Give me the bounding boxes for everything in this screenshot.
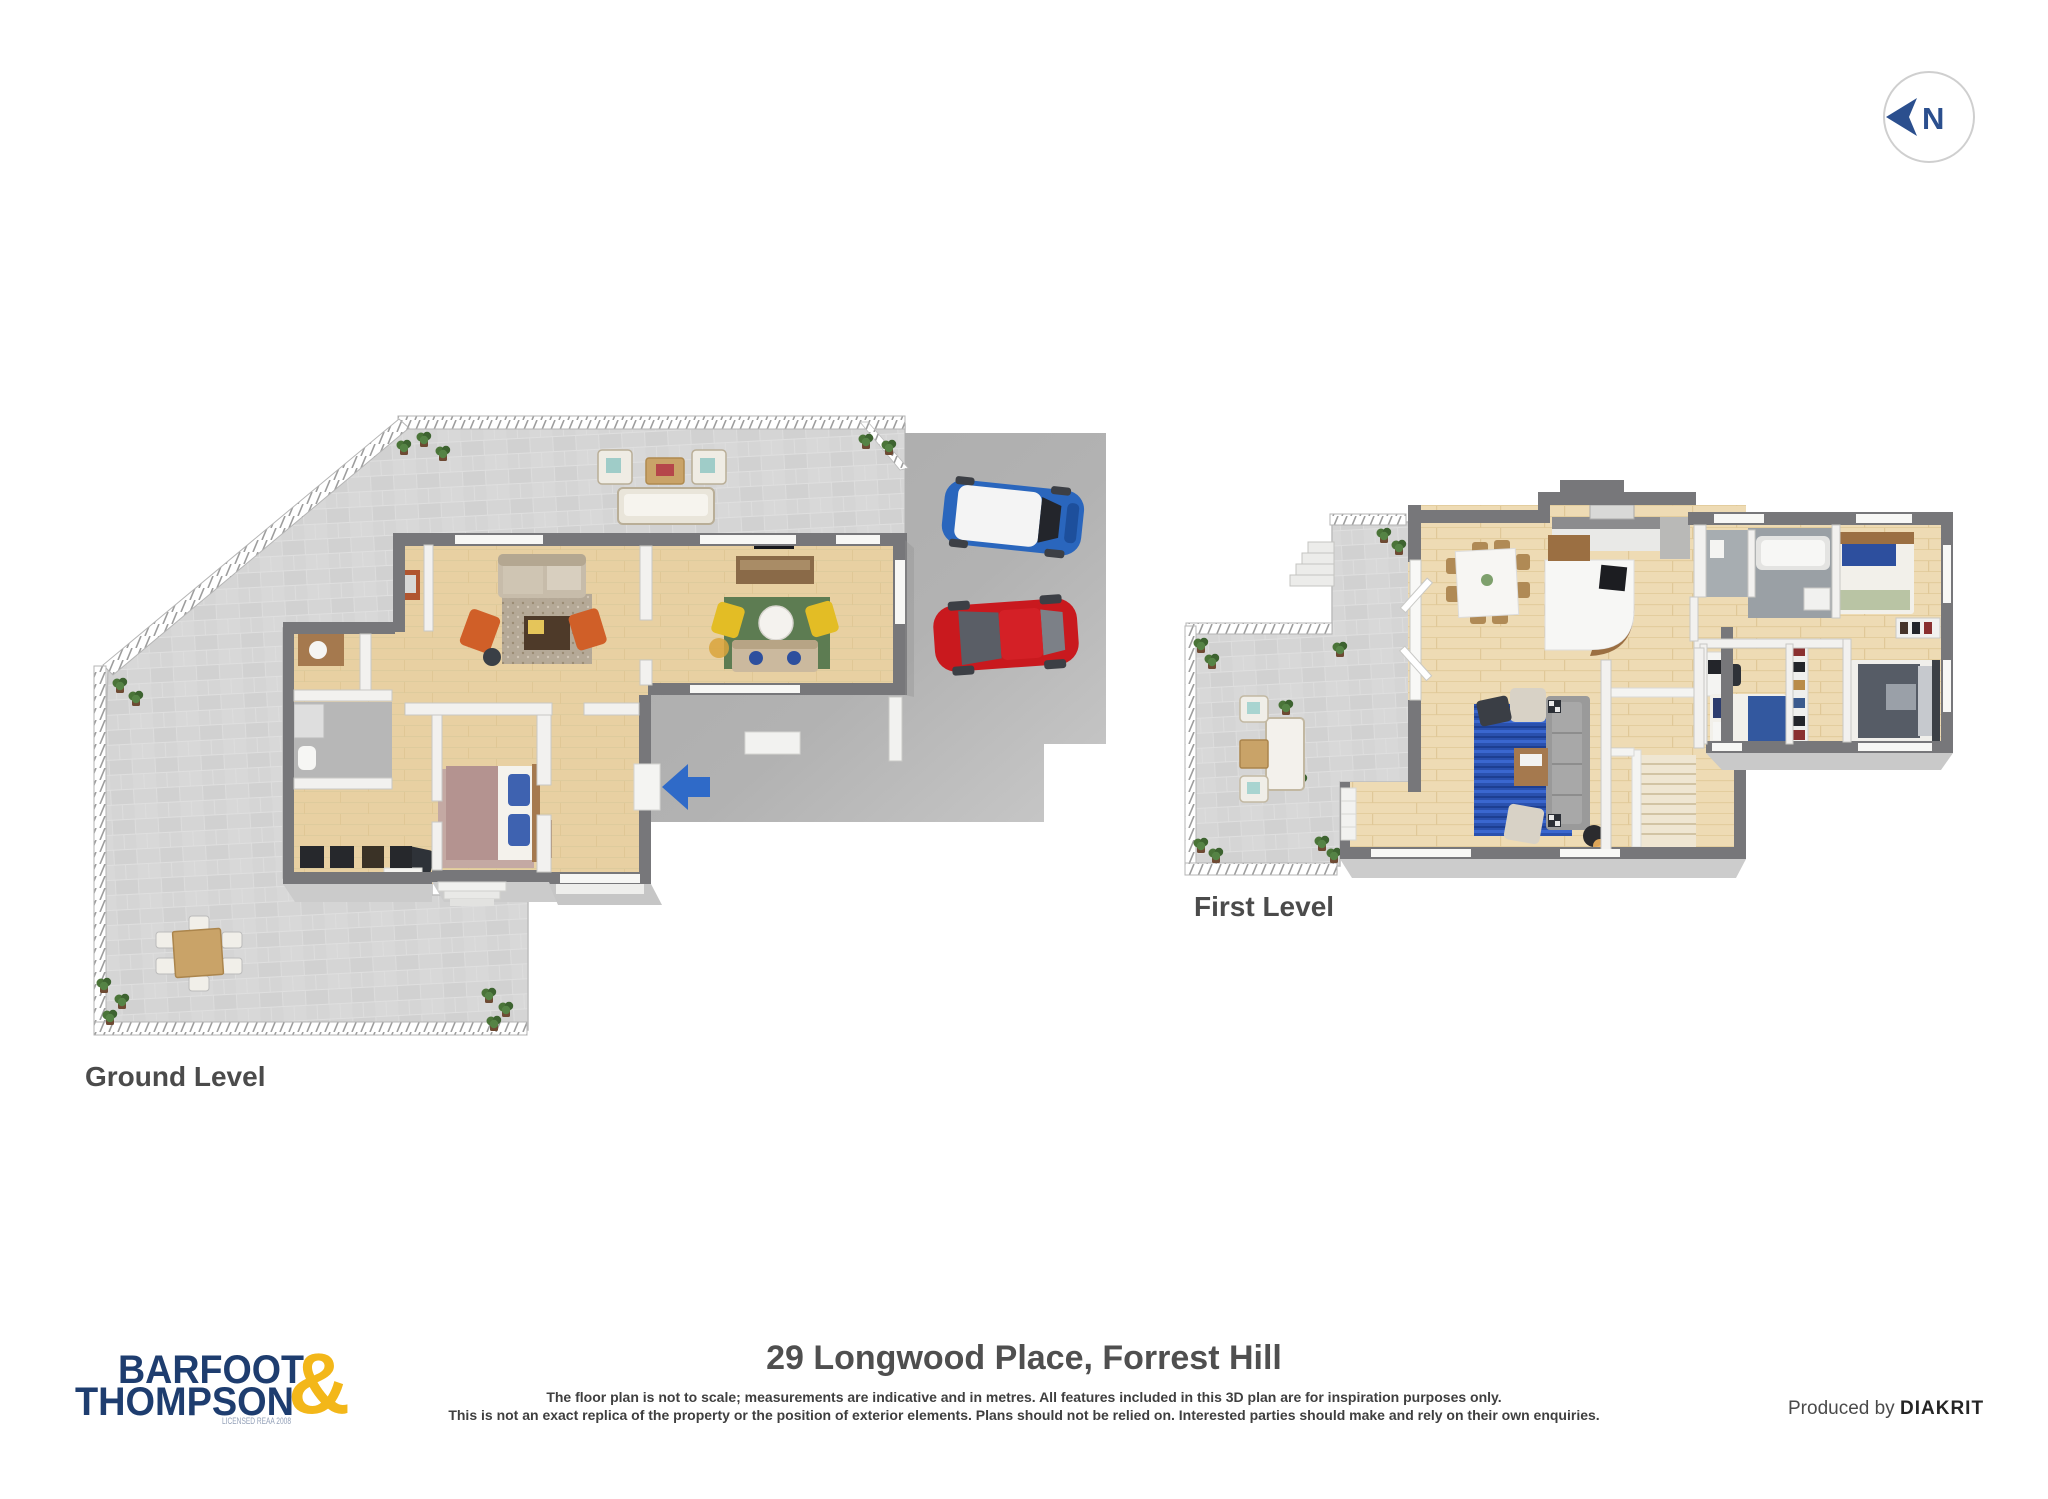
- svg-text:DIAKRIT: DIAKRIT: [1900, 1398, 1984, 1419]
- svg-text:The floor plan is not to scale: The floor plan is not to scale; measurem…: [546, 1389, 1501, 1405]
- svg-text:This is not an exact replica o: This is not an exact replica of the prop…: [448, 1407, 1599, 1423]
- svg-text:N: N: [1922, 101, 1944, 136]
- svg-text:First Level: First Level: [1194, 891, 1334, 922]
- svg-text:Ground Level: Ground Level: [85, 1061, 265, 1092]
- svg-text:29 Longwood Place, Forrest Hil: 29 Longwood Place, Forrest Hill: [766, 1339, 1282, 1377]
- svg-text:&: &: [288, 1336, 350, 1432]
- svg-text:LICENSED REAA 2008: LICENSED REAA 2008: [222, 1416, 291, 1426]
- svg-text:Produced by: Produced by: [1788, 1398, 1895, 1419]
